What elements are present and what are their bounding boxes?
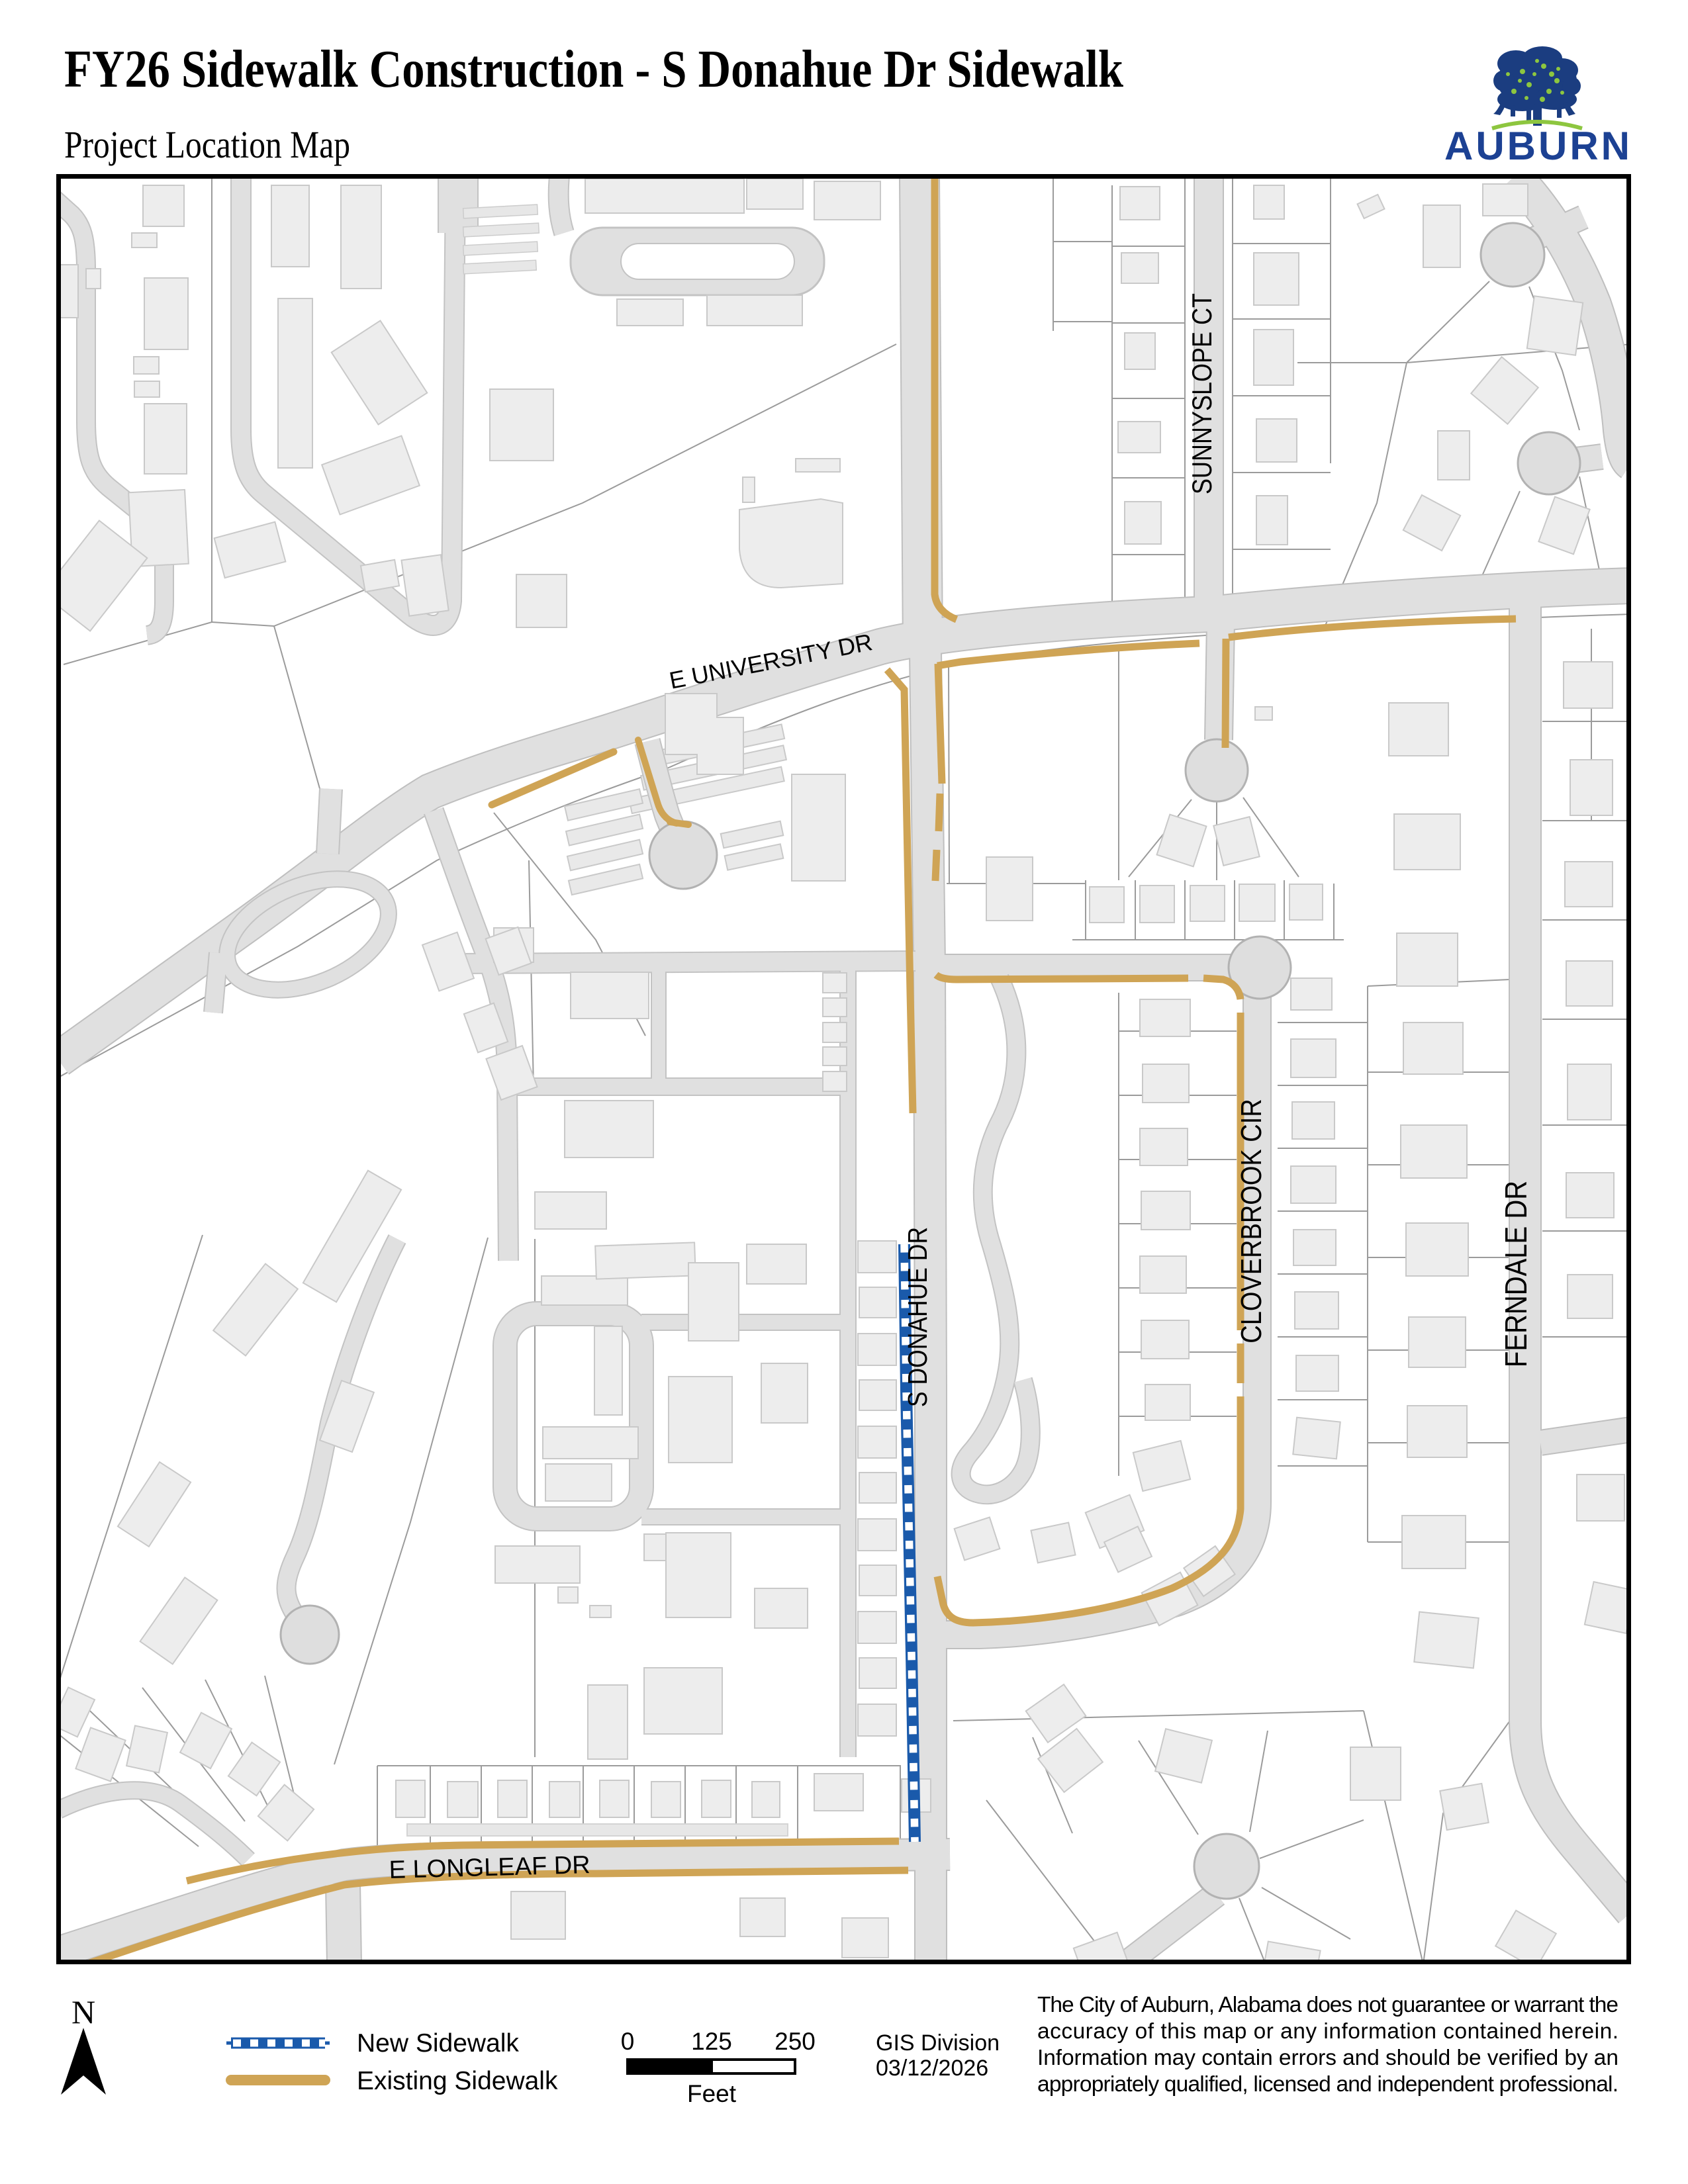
svg-text:S DONAHUE DR: S DONAHUE DR [903, 1227, 933, 1407]
svg-text:accuracy of this map or any in: accuracy of this map or any information … [1037, 2019, 1618, 2044]
svg-text:E LONGLEAF DR: E LONGLEAF DR [389, 1851, 590, 1884]
svg-text:250: 250 [774, 2028, 816, 2055]
svg-text:CLOVERBROOK CIR: CLOVERBROOK CIR [1235, 1099, 1268, 1343]
svg-text:New Sidewalk: New Sidewalk [357, 2029, 519, 2058]
svg-text:Feet: Feet [687, 2080, 737, 2107]
svg-text:N: N [71, 1993, 95, 2030]
svg-text:FERNDALE DR: FERNDALE DR [1499, 1181, 1533, 1367]
svg-text:0: 0 [621, 2028, 635, 2055]
svg-text:03/12/2026: 03/12/2026 [876, 2056, 988, 2081]
svg-text:GIS Division: GIS Division [876, 2030, 1000, 2056]
svg-text:appropriately qualified, licen: appropriately qualified, licensed and in… [1037, 2072, 1618, 2097]
svg-text:SUNNYSLOPE CT: SUNNYSLOPE CT [1188, 293, 1218, 494]
svg-text:Project Location Map: Project Location Map [64, 123, 350, 166]
svg-text:Existing Sidewalk: Existing Sidewalk [357, 2067, 558, 2095]
svg-text:FY26 Sidewalk Construction - S: FY26 Sidewalk Construction - S Donahue D… [64, 39, 1123, 99]
svg-text:The City of Auburn, Alabama do: The City of Auburn, Alabama does not gua… [1037, 1993, 1618, 2017]
svg-text:Information may contain errors: Information may contain errors and shoul… [1037, 2046, 1618, 2070]
svg-text:AUBURN: AUBURN [1444, 124, 1632, 168]
svg-text:125: 125 [691, 2028, 732, 2055]
